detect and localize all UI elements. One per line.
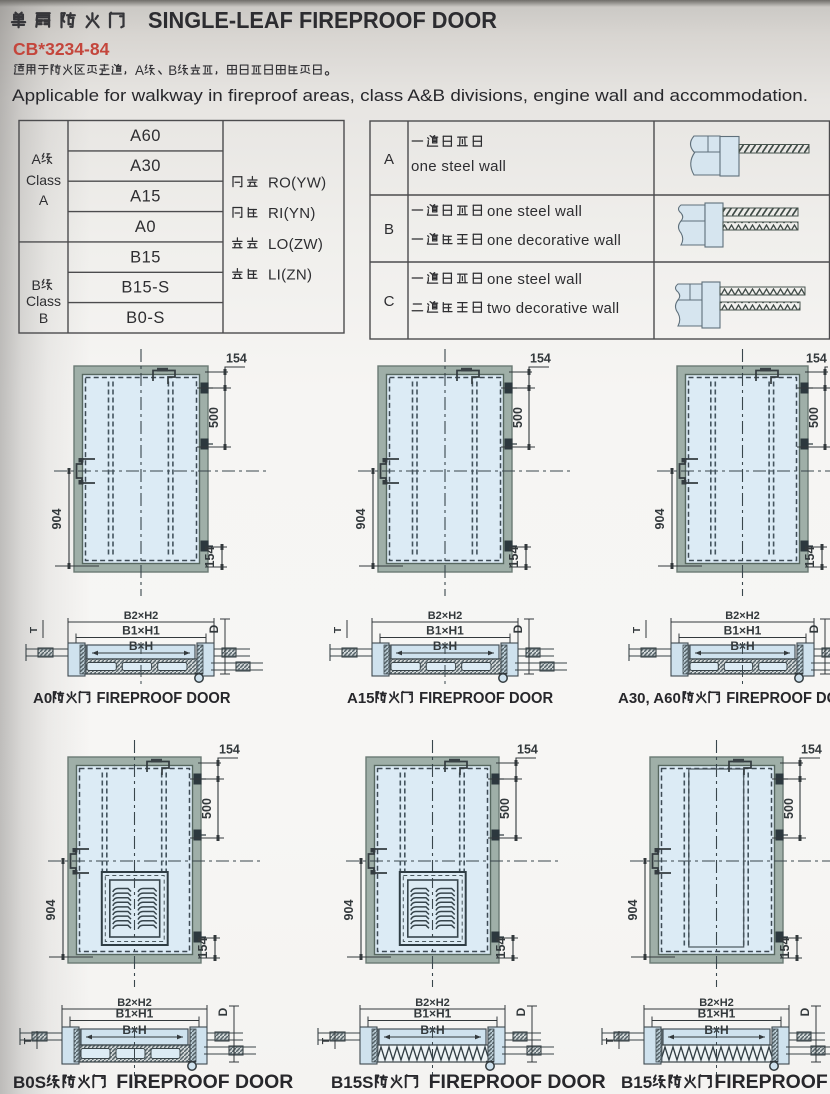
svg-text:T: T [22,1037,34,1044]
svg-text:B: B [39,310,48,326]
svg-text:B0S: B0S [13,1073,46,1092]
svg-text:RI(YN): RI(YN) [268,205,316,222]
svg-text:A15: A15 [347,690,375,707]
svg-text:T: T [28,626,40,633]
svg-text:B15-S: B15-S [121,279,169,297]
svg-text:B1×H1: B1×H1 [724,624,762,638]
svg-text:D: D [511,624,525,633]
svg-text:154: 154 [530,352,551,366]
svg-text:154: 154 [801,743,822,757]
svg-text:B2×H2: B2×H2 [124,610,159,622]
svg-text:C: C [384,293,395,310]
svg-text:154: 154 [778,938,792,959]
svg-text:154: 154 [494,938,508,959]
svg-text:B: B [168,63,177,78]
svg-text:500: 500 [511,407,525,428]
svg-text:T: T [332,626,344,633]
svg-text:T: T [320,1037,332,1044]
svg-text:D: D [514,1007,528,1016]
svg-text:A: A [39,192,49,208]
svg-text:B0-S: B0-S [126,309,165,327]
svg-text:Class: Class [26,172,61,188]
svg-text:FIREPROOF DOOR: FIREPROOF DOOR [116,1072,293,1093]
svg-text:904: 904 [44,900,58,921]
svg-text:154: 154 [196,938,210,959]
svg-text:FIREPROOF DOOR: FIREPROOF DOOR [419,690,553,707]
svg-text:154: 154 [203,547,217,568]
svg-text:500: 500 [200,798,214,819]
svg-text:B1×H1: B1×H1 [426,624,464,638]
svg-text:500: 500 [498,798,512,819]
svg-text:A0: A0 [33,690,52,707]
svg-text:Class: Class [26,293,61,309]
svg-text:A30, A60: A30, A60 [618,690,681,707]
svg-text:500: 500 [807,407,821,428]
svg-text:500: 500 [207,407,221,428]
svg-text:904: 904 [653,509,667,530]
svg-text:A: A [32,151,42,167]
svg-text:B1×H1: B1×H1 [698,1007,736,1021]
svg-text:one steel wall: one steel wall [487,203,582,220]
svg-text:B15: B15 [130,248,161,266]
svg-text:one decorative wall: one decorative wall [487,232,621,249]
svg-text:T: T [604,1037,616,1044]
svg-text:one steel wall: one steel wall [411,158,506,175]
svg-text:904: 904 [354,509,368,530]
svg-text:B1×H1: B1×H1 [116,1007,154,1021]
svg-text:B1×H1: B1×H1 [414,1007,452,1021]
svg-text:B15: B15 [621,1073,652,1092]
svg-text:154: 154 [507,547,521,568]
svg-text:two decorative wall: two decorative wall [487,300,619,317]
svg-text:one steel wall: one steel wall [487,271,582,288]
svg-text:FIREPROOF DOOR: FIREPROOF DOOR [726,690,830,707]
svg-text:D: D [207,624,221,633]
svg-text:B2×H2: B2×H2 [428,610,463,622]
svg-text:B: B [32,277,41,293]
svg-text:904: 904 [342,900,356,921]
svg-text:A: A [135,63,144,78]
svg-text:B1×H1: B1×H1 [122,624,160,638]
svg-text:FIREPROOF DOOR: FIREPROOF DOOR [97,690,231,707]
svg-text:B: B [384,221,394,238]
svg-text:904: 904 [626,900,640,921]
svg-text:T: T [631,626,643,633]
svg-text:SINGLE-LEAF FIREPROOF DOOR: SINGLE-LEAF FIREPROOF DOOR [148,7,497,33]
svg-text:154: 154 [806,352,827,366]
svg-text:500: 500 [782,798,796,819]
svg-text:154: 154 [517,743,538,757]
svg-text:LI(ZN): LI(ZN) [268,267,312,284]
svg-text:A: A [384,151,394,168]
svg-text:B2×H2: B2×H2 [725,610,760,622]
svg-text:A0: A0 [135,218,156,236]
svg-text:D: D [798,1007,812,1016]
svg-text:154: 154 [226,352,247,366]
svg-text:Applicable for walkway in fire: Applicable for walkway in fireproof area… [12,87,808,105]
svg-text:FIREPROOF DOOR: FIREPROOF DOOR [714,1072,830,1093]
svg-text:D: D [807,624,821,633]
svg-text:904: 904 [50,509,64,530]
svg-text:RO(YW): RO(YW) [268,175,326,192]
svg-text:154: 154 [219,743,240,757]
svg-text:FIREPROOF DOOR: FIREPROOF DOOR [429,1072,606,1093]
svg-text:D: D [216,1007,230,1016]
svg-text:A15: A15 [130,188,161,206]
svg-text:154: 154 [803,547,817,568]
svg-text:B15S: B15S [331,1073,374,1092]
svg-text:LO(ZW): LO(ZW) [268,236,323,253]
svg-text:A30: A30 [130,157,161,175]
svg-text:A60: A60 [130,127,161,145]
svg-text:CB*3234-84: CB*3234-84 [13,39,110,59]
